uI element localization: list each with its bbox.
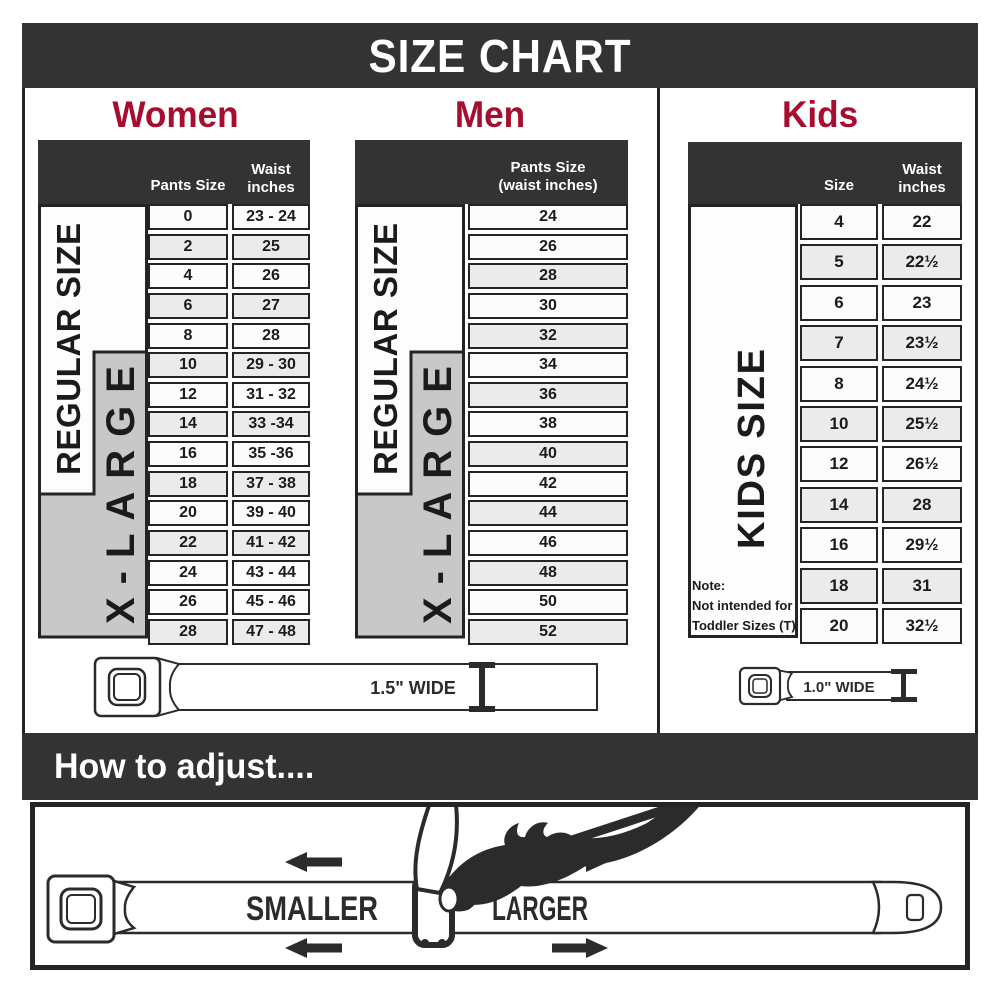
arrow-right-bottom-icon xyxy=(552,938,608,958)
table-row: 4 22 xyxy=(800,204,962,240)
waist-cell: 28 xyxy=(232,323,310,349)
arrow-left-top-icon xyxy=(285,852,342,872)
waist-cell: 22½ xyxy=(882,244,962,280)
fingertip-highlight xyxy=(440,887,458,911)
kids-col-size: Size xyxy=(800,177,878,196)
table-row: 38 xyxy=(468,411,628,437)
pants-size-cell: 14 xyxy=(148,411,228,437)
table-row: 32 xyxy=(468,323,628,349)
table-row: 12 26½ xyxy=(800,446,962,482)
women-table-header: Pants Size Waist inches xyxy=(38,140,310,204)
table-row: 48 xyxy=(468,560,628,586)
waist-cell: 43 - 44 xyxy=(232,560,310,586)
pants-size-cell: 42 xyxy=(468,471,628,497)
table-row: 20 39 - 40 xyxy=(148,500,310,526)
pants-size-cell: 26 xyxy=(148,589,228,615)
table-row: 28 47 - 48 xyxy=(148,619,310,645)
pants-size-cell: 12 xyxy=(148,382,228,408)
page-title: SIZE CHART xyxy=(368,29,631,83)
width-marker-bar xyxy=(479,662,485,712)
pants-size-cell: 40 xyxy=(468,441,628,467)
waist-cell: 33 -34 xyxy=(232,411,310,437)
seatbelt-buckle-icon xyxy=(48,876,114,942)
arrow-left-bottom-icon xyxy=(285,938,342,958)
size-cell: 12 xyxy=(800,446,878,482)
women-size-group-labels: REGULAR SIZE X-LARGE xyxy=(38,204,148,645)
pants-size-cell: 18 xyxy=(148,471,228,497)
waist-cell: 24½ xyxy=(882,366,962,402)
men-table-header: Pants Size (waist inches) xyxy=(355,140,628,204)
pants-size-cell: 36 xyxy=(468,382,628,408)
waist-cell: 39 - 40 xyxy=(232,500,310,526)
waist-cell: 22 xyxy=(882,204,962,240)
width-marker-bar xyxy=(901,669,906,702)
table-row: 6 23 xyxy=(800,285,962,321)
men-regular-size-label: REGULAR SIZE xyxy=(367,223,404,475)
waist-cell: 37 - 38 xyxy=(232,471,310,497)
waist-cell: 29½ xyxy=(882,527,962,563)
adjust-illustration-box: SMALLER LARGER xyxy=(30,802,970,970)
table-row: 22 41 - 42 xyxy=(148,530,310,556)
table-row: 16 29½ xyxy=(800,527,962,563)
table-row: 4 26 xyxy=(148,263,310,289)
pants-size-cell: 22 xyxy=(148,530,228,556)
table-row: 14 28 xyxy=(800,487,962,523)
size-chart-banner: SIZE CHART xyxy=(22,23,978,88)
table-row: 24 43 - 44 xyxy=(148,560,310,586)
kids-size-table: 4 22 5 22½ 6 23 7 23½ 8 24½ 10 25½ 12 26… xyxy=(800,204,962,644)
pants-size-cell: 30 xyxy=(468,293,628,319)
table-row: 10 25½ xyxy=(800,406,962,442)
smaller-label: SMALLER xyxy=(246,890,378,928)
table-row: 28 xyxy=(468,263,628,289)
pants-size-cell: 48 xyxy=(468,560,628,586)
waist-cell: 29 - 30 xyxy=(232,352,310,378)
women-col-pants-size: Pants Size xyxy=(148,177,228,196)
table-row: 50 xyxy=(468,589,628,615)
table-row: 18 31 xyxy=(800,568,962,604)
size-cell: 5 xyxy=(800,244,878,280)
size-cell: 18 xyxy=(800,568,878,604)
waist-cell: 31 xyxy=(882,568,962,604)
waist-cell: 47 - 48 xyxy=(232,619,310,645)
women-section-title: Women xyxy=(55,94,295,136)
pants-size-cell: 28 xyxy=(468,263,628,289)
size-cell: 16 xyxy=(800,527,878,563)
table-row: 0 23 - 24 xyxy=(148,204,310,230)
kids-belt-illustration: 1.0" WIDE xyxy=(733,658,933,710)
waist-cell: 27 xyxy=(232,293,310,319)
table-row: 52 xyxy=(468,619,628,645)
size-cell: 4 xyxy=(800,204,878,240)
pants-size-cell: 28 xyxy=(148,619,228,645)
pants-size-cell: 52 xyxy=(468,619,628,645)
how-to-adjust-banner: How to adjust.... xyxy=(22,733,978,800)
frame-right-border xyxy=(975,88,978,733)
kids-col-waist: Waist inches xyxy=(882,161,962,199)
pants-size-cell: 10 xyxy=(148,352,228,378)
kids-note: Note: Not intended for Toddler Sizes (T) xyxy=(692,576,798,636)
pants-size-cell: 46 xyxy=(468,530,628,556)
men-size-group-labels: REGULAR SIZE X-LARGE xyxy=(355,204,465,645)
pants-size-cell: 2 xyxy=(148,234,228,260)
waist-cell: 25½ xyxy=(882,406,962,442)
table-row: 8 28 xyxy=(148,323,310,349)
kids-size-group-label: KIDS SIZE xyxy=(688,204,798,638)
table-row: 26 xyxy=(468,234,628,260)
waist-cell: 41 - 42 xyxy=(232,530,310,556)
pants-size-cell: 16 xyxy=(148,441,228,467)
men-col-pants-size: Pants Size (waist inches) xyxy=(468,159,628,197)
waist-cell: 45 - 46 xyxy=(232,589,310,615)
kids-section-title: Kids xyxy=(700,94,940,136)
size-cell: 6 xyxy=(800,285,878,321)
waist-cell: 25 xyxy=(232,234,310,260)
table-row: 40 xyxy=(468,441,628,467)
table-row: 5 22½ xyxy=(800,244,962,280)
frame-divider xyxy=(657,88,660,733)
pants-size-cell: 50 xyxy=(468,589,628,615)
pants-size-cell: 6 xyxy=(148,293,228,319)
pants-size-cell: 0 xyxy=(148,204,228,230)
kids-table-header: Size Waist inches xyxy=(688,142,962,204)
table-row: 46 xyxy=(468,530,628,556)
kids-size-label: KIDS SIZE xyxy=(731,349,773,549)
waist-cell: 31 - 32 xyxy=(232,382,310,408)
frame-left-border xyxy=(22,88,25,733)
pants-size-cell: 24 xyxy=(468,204,628,230)
belt-width-label: 1.0" WIDE xyxy=(803,679,874,696)
table-row: 18 37 - 38 xyxy=(148,471,310,497)
size-cell: 20 xyxy=(800,608,878,644)
pants-size-cell: 24 xyxy=(148,560,228,586)
table-row: 26 45 - 46 xyxy=(148,589,310,615)
waist-cell: 26 xyxy=(232,263,310,289)
adjust-illustration: SMALLER LARGER xyxy=(35,807,965,965)
pants-size-cell: 4 xyxy=(148,263,228,289)
seatbelt-buckle-icon xyxy=(740,668,780,704)
table-row: 44 xyxy=(468,500,628,526)
seatbelt-buckle-icon xyxy=(95,658,160,716)
table-row: 34 xyxy=(468,352,628,378)
table-row: 6 27 xyxy=(148,293,310,319)
size-chart-page: SIZE CHART Women Men Kids Pants Size Wai… xyxy=(0,0,1000,1000)
table-row: 10 29 - 30 xyxy=(148,352,310,378)
table-row: 14 33 -34 xyxy=(148,411,310,437)
adjuster-foot xyxy=(438,939,446,947)
adult-belt-illustration: 1.5" WIDE xyxy=(88,653,603,723)
pants-size-cell: 26 xyxy=(468,234,628,260)
waist-cell: 28 xyxy=(882,487,962,523)
table-row: 24 xyxy=(468,204,628,230)
pants-size-cell: 20 xyxy=(148,500,228,526)
men-size-table: 24 26 28 30 32 34 36 38 40 42 44 46 48 5… xyxy=(468,204,628,645)
waist-cell: 35 -36 xyxy=(232,441,310,467)
adjuster-foot xyxy=(421,939,429,947)
women-regular-size-label: REGULAR SIZE xyxy=(50,223,87,475)
belt-width-label: 1.5" WIDE xyxy=(370,678,456,698)
table-row: 16 35 -36 xyxy=(148,441,310,467)
waist-cell: 32½ xyxy=(882,608,962,644)
belt-tip-slot xyxy=(907,895,923,920)
table-row: 8 24½ xyxy=(800,366,962,402)
table-row: 30 xyxy=(468,293,628,319)
pants-size-cell: 8 xyxy=(148,323,228,349)
size-cell: 7 xyxy=(800,325,878,361)
table-row: 2 25 xyxy=(148,234,310,260)
women-size-table: 0 23 - 24 2 25 4 26 6 27 8 28 10 29 - 30… xyxy=(148,204,310,645)
table-row: 36 xyxy=(468,382,628,408)
waist-cell: 23½ xyxy=(882,325,962,361)
size-cell: 8 xyxy=(800,366,878,402)
men-section-title: Men xyxy=(370,94,610,136)
table-row: 42 xyxy=(468,471,628,497)
women-col-waist: Waist inches xyxy=(232,161,310,199)
pants-size-cell: 32 xyxy=(468,323,628,349)
waist-cell: 26½ xyxy=(882,446,962,482)
pants-size-cell: 44 xyxy=(468,500,628,526)
pants-size-cell: 34 xyxy=(468,352,628,378)
pants-size-cell: 38 xyxy=(468,411,628,437)
size-cell: 14 xyxy=(800,487,878,523)
table-row: 12 31 - 32 xyxy=(148,382,310,408)
waist-cell: 23 - 24 xyxy=(232,204,310,230)
table-row: 7 23½ xyxy=(800,325,962,361)
how-to-adjust-title: How to adjust.... xyxy=(54,747,314,787)
size-cell: 10 xyxy=(800,406,878,442)
table-row: 20 32½ xyxy=(800,608,962,644)
waist-cell: 23 xyxy=(882,285,962,321)
